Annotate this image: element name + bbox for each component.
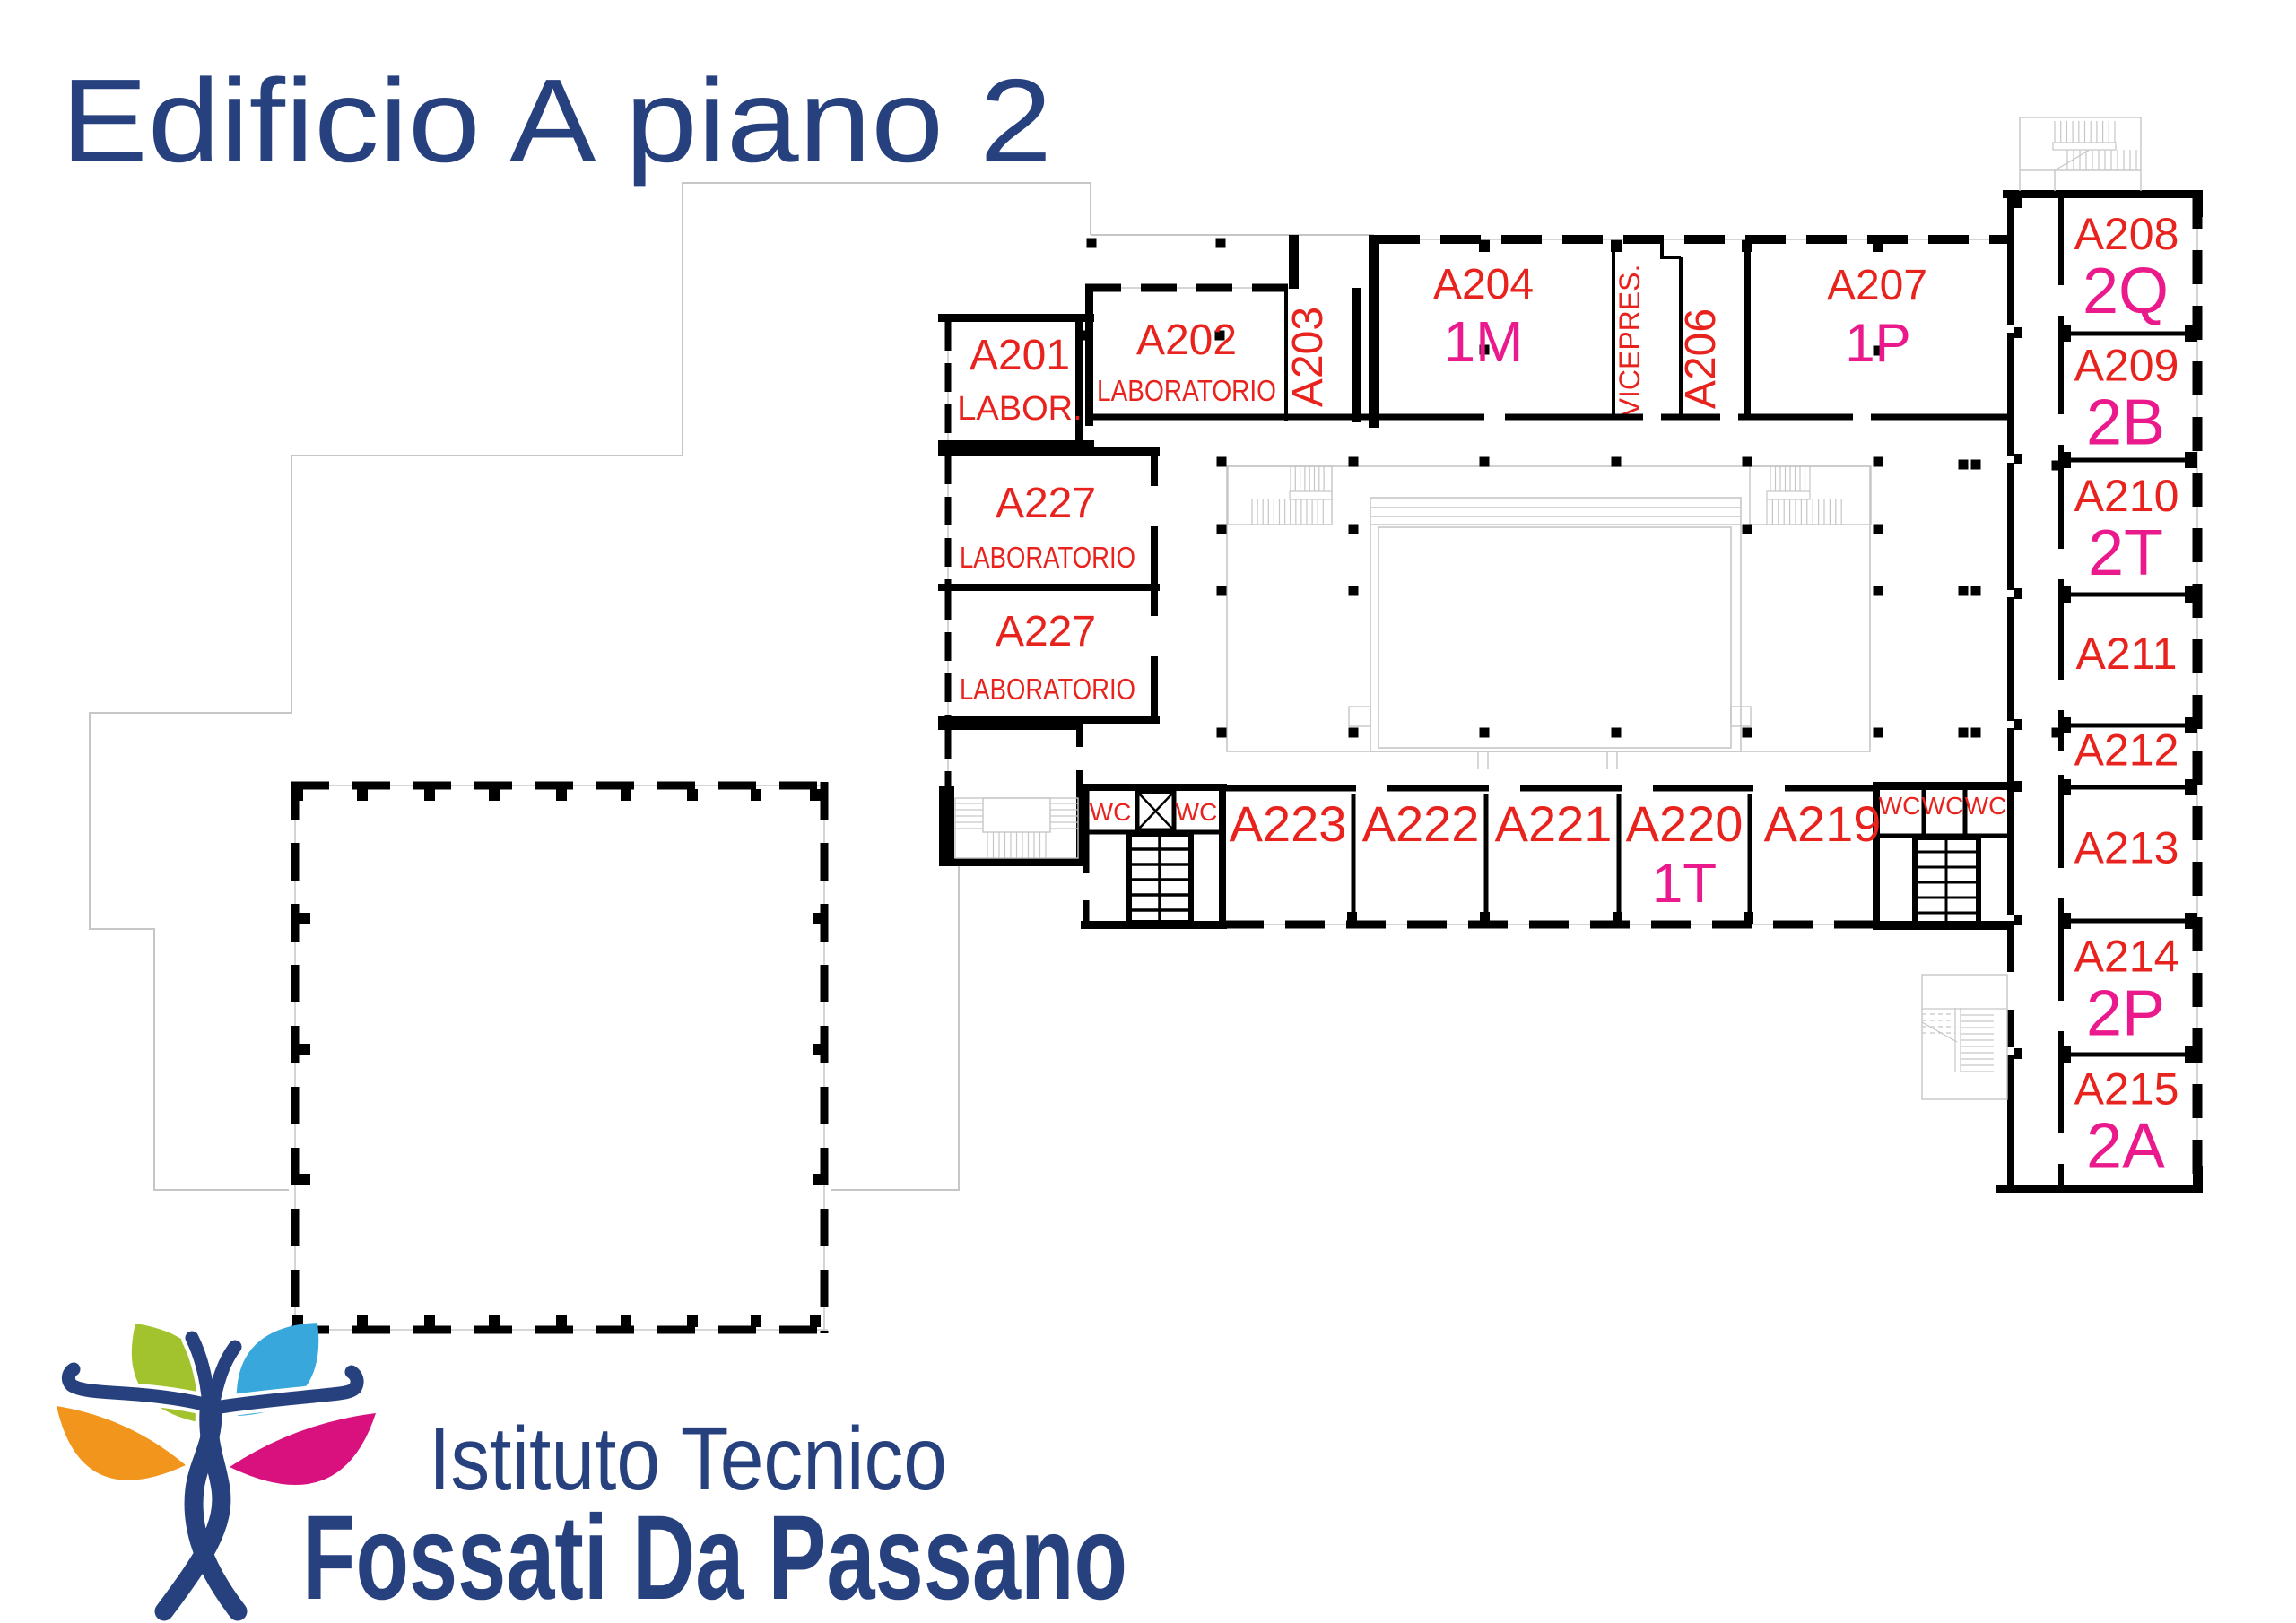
svg-text:2B: 2B xyxy=(2086,387,2165,459)
svg-text:WC: WC xyxy=(1965,792,2007,820)
svg-text:A220: A220 xyxy=(1626,795,1744,852)
svg-text:2Q: 2Q xyxy=(2083,256,2169,327)
svg-text:WC: WC xyxy=(1176,798,1218,826)
svg-text:A227: A227 xyxy=(996,480,1096,527)
svg-text:1T: 1T xyxy=(1652,853,1717,915)
svg-text:VICEPRES.: VICEPRES. xyxy=(1613,265,1646,418)
svg-text:A214: A214 xyxy=(2074,932,2179,982)
svg-text:Edificio A piano 2: Edificio A piano 2 xyxy=(61,55,1052,187)
svg-text:WC: WC xyxy=(1879,792,1921,820)
svg-text:WC: WC xyxy=(1090,798,1132,826)
svg-text:1M: 1M xyxy=(1444,309,1524,374)
svg-text:A221: A221 xyxy=(1495,795,1613,852)
svg-text:LABORATORIO: LABORATORIO xyxy=(960,541,1135,574)
svg-text:A219: A219 xyxy=(1764,795,1882,852)
svg-text:WC: WC xyxy=(1922,792,1964,820)
svg-text:A206: A206 xyxy=(1677,308,1725,409)
svg-text:2A: 2A xyxy=(2086,1111,2165,1183)
svg-text:LABORATORIO: LABORATORIO xyxy=(960,673,1135,706)
svg-text:1P: 1P xyxy=(1845,313,1910,373)
svg-text:A207: A207 xyxy=(1827,262,1927,309)
svg-text:Fossati Da Passano: Fossati Da Passano xyxy=(302,1491,1127,1623)
svg-text:A210: A210 xyxy=(2074,471,2179,521)
svg-text:A209: A209 xyxy=(2074,341,2179,391)
svg-text:A223: A223 xyxy=(1230,795,1347,852)
svg-text:LABOR.: LABOR. xyxy=(957,390,1082,428)
svg-text:A211: A211 xyxy=(2075,629,2177,679)
svg-text:A204: A204 xyxy=(1433,261,1534,308)
svg-text:2T: 2T xyxy=(2088,517,2163,589)
svg-text:LABORATORIO: LABORATORIO xyxy=(1097,374,1276,407)
svg-text:A203: A203 xyxy=(1284,307,1332,407)
svg-text:A215: A215 xyxy=(2074,1064,2179,1115)
svg-text:A222: A222 xyxy=(1362,795,1480,852)
svg-text:A208: A208 xyxy=(2074,209,2179,259)
svg-text:A202: A202 xyxy=(1136,317,1237,364)
svg-text:A213: A213 xyxy=(2074,823,2179,873)
svg-text:2P: 2P xyxy=(2086,978,2165,1050)
svg-text:A227: A227 xyxy=(996,608,1096,655)
svg-text:A212: A212 xyxy=(2074,725,2179,776)
svg-text:A201: A201 xyxy=(970,332,1070,379)
